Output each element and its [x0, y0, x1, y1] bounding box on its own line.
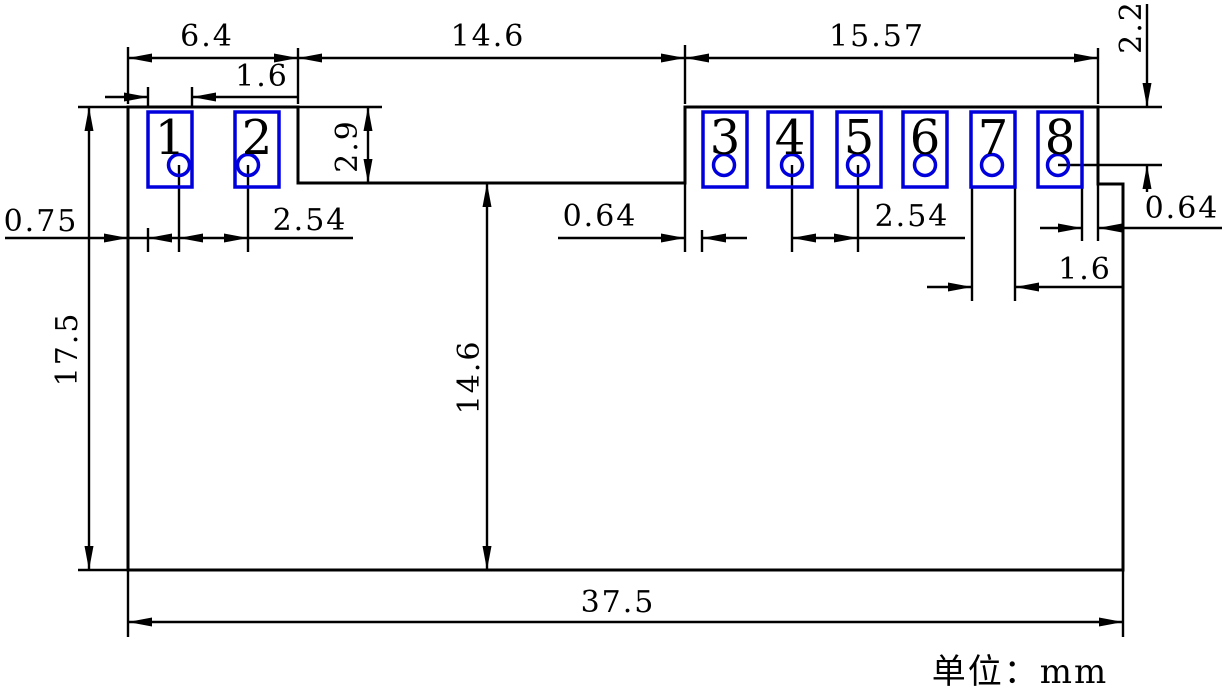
dimension-label: 2.9 [330, 119, 365, 173]
dimension-label: 15.57 [829, 19, 925, 54]
dimension-label: 0.64 [1145, 191, 1220, 226]
dimension-label: 1.6 [235, 59, 289, 94]
dimension-label: 2.54 [273, 203, 348, 238]
dimension-label: 14.6 [451, 19, 526, 54]
pad-number: 7 [978, 110, 1009, 166]
dimension-label: 37.5 [581, 585, 656, 620]
pad-number: 6 [910, 110, 941, 166]
pad-number: 3 [710, 110, 741, 166]
dimension-label: 2.2 [1114, 0, 1149, 54]
unit-note: 单位：mm [930, 644, 1110, 692]
pad-number: 1 [155, 110, 186, 166]
dimension-label: 2.54 [875, 199, 950, 234]
pad-number: 8 [1045, 110, 1076, 166]
footprint-drawing: 6.414.615.571.62.92.20.752.540.642.540.6… [0, 0, 1225, 692]
dimension-label: 0.64 [563, 199, 638, 234]
dimension-label: 1.6 [1058, 252, 1112, 287]
pad-number: 4 [775, 110, 806, 166]
pad-number: 2 [242, 110, 273, 166]
dimension-label: 14.6 [452, 340, 487, 415]
dimension-label: 0.75 [4, 204, 79, 239]
dimension-label: 17.5 [50, 312, 85, 387]
pad-number: 5 [844, 110, 875, 166]
drawing-canvas: 6.414.615.571.62.92.20.752.540.642.540.6… [0, 0, 1225, 692]
dimension-label: 6.4 [180, 19, 234, 54]
